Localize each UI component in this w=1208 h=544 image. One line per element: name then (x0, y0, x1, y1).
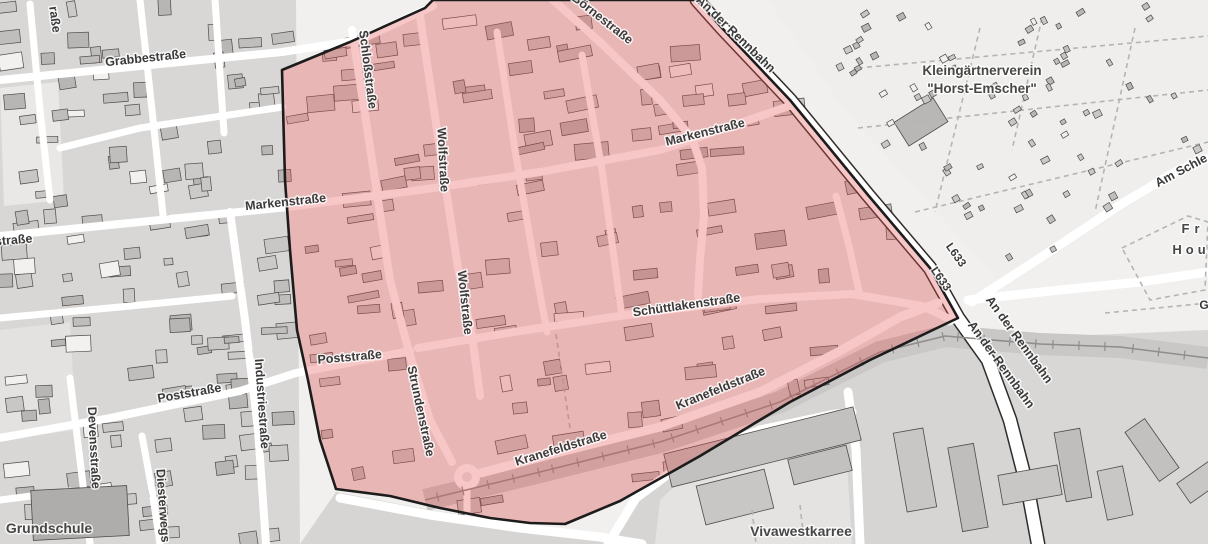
map-canvas[interactable]: GrabbestraßeraßeSchloßstraßeWolfstraßeWo… (0, 0, 1208, 544)
map-viewport[interactable]: GrabbestraßeraßeSchloßstraßeWolfstraßeWo… (0, 0, 1208, 544)
area-label-kleingärtnerverein: Kleingärtnerverein (922, 63, 1041, 78)
area-label-horst-emscher: "Horst-Emscher" (927, 81, 1037, 96)
area-label-hou: Hou (1172, 242, 1208, 257)
area-label-fr: Fr (1182, 221, 1205, 236)
area-label-vivawestkarree: Vivawestkarree (750, 523, 852, 539)
street-label-g: G (1199, 298, 1208, 312)
area-label-grundschule: Grundschule (6, 520, 93, 536)
